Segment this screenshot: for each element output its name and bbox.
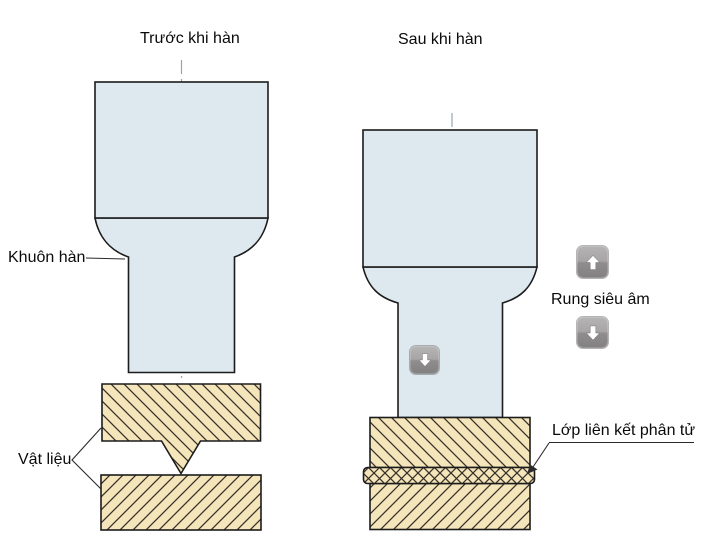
material-bottom-before: [101, 475, 261, 530]
diagram-canvas: [0, 0, 707, 560]
arrow-down-icon: [583, 323, 603, 343]
material-top-before: [102, 384, 261, 474]
horn-stem-after: [363, 267, 537, 418]
vibration-up-indicator: [577, 246, 608, 278]
horn-body-after: [363, 130, 537, 267]
vibration-down-indicator: [577, 317, 608, 348]
material-label-leader: [72, 428, 101, 489]
press-down-indicator: [410, 346, 439, 374]
material-label: Vật liệu: [18, 452, 71, 469]
material-bottom-after: [370, 484, 530, 530]
horn-label: Khuôn hàn: [8, 250, 85, 267]
bond-layer-label: Lớp liên kết phân tử: [552, 423, 695, 440]
horn-body-before: [95, 82, 268, 218]
vibration-label: Rung siêu âm: [551, 292, 650, 309]
arrow-down-icon: [416, 351, 434, 369]
ultrasonic-welding-diagram: Trước khi hàn Sau khi hàn Khuôn hàn Vật …: [0, 0, 707, 560]
title-after-welding: Sau khi hàn: [398, 32, 483, 49]
bond-layer: [364, 468, 535, 484]
horn-label-leader: [86, 258, 125, 259]
bond-label-leader: [533, 443, 549, 467]
material-top-after: [370, 418, 530, 468]
horn-stem-before: [95, 218, 268, 373]
title-before-welding: Trước khi hàn: [140, 31, 240, 48]
arrow-up-icon: [583, 252, 603, 273]
